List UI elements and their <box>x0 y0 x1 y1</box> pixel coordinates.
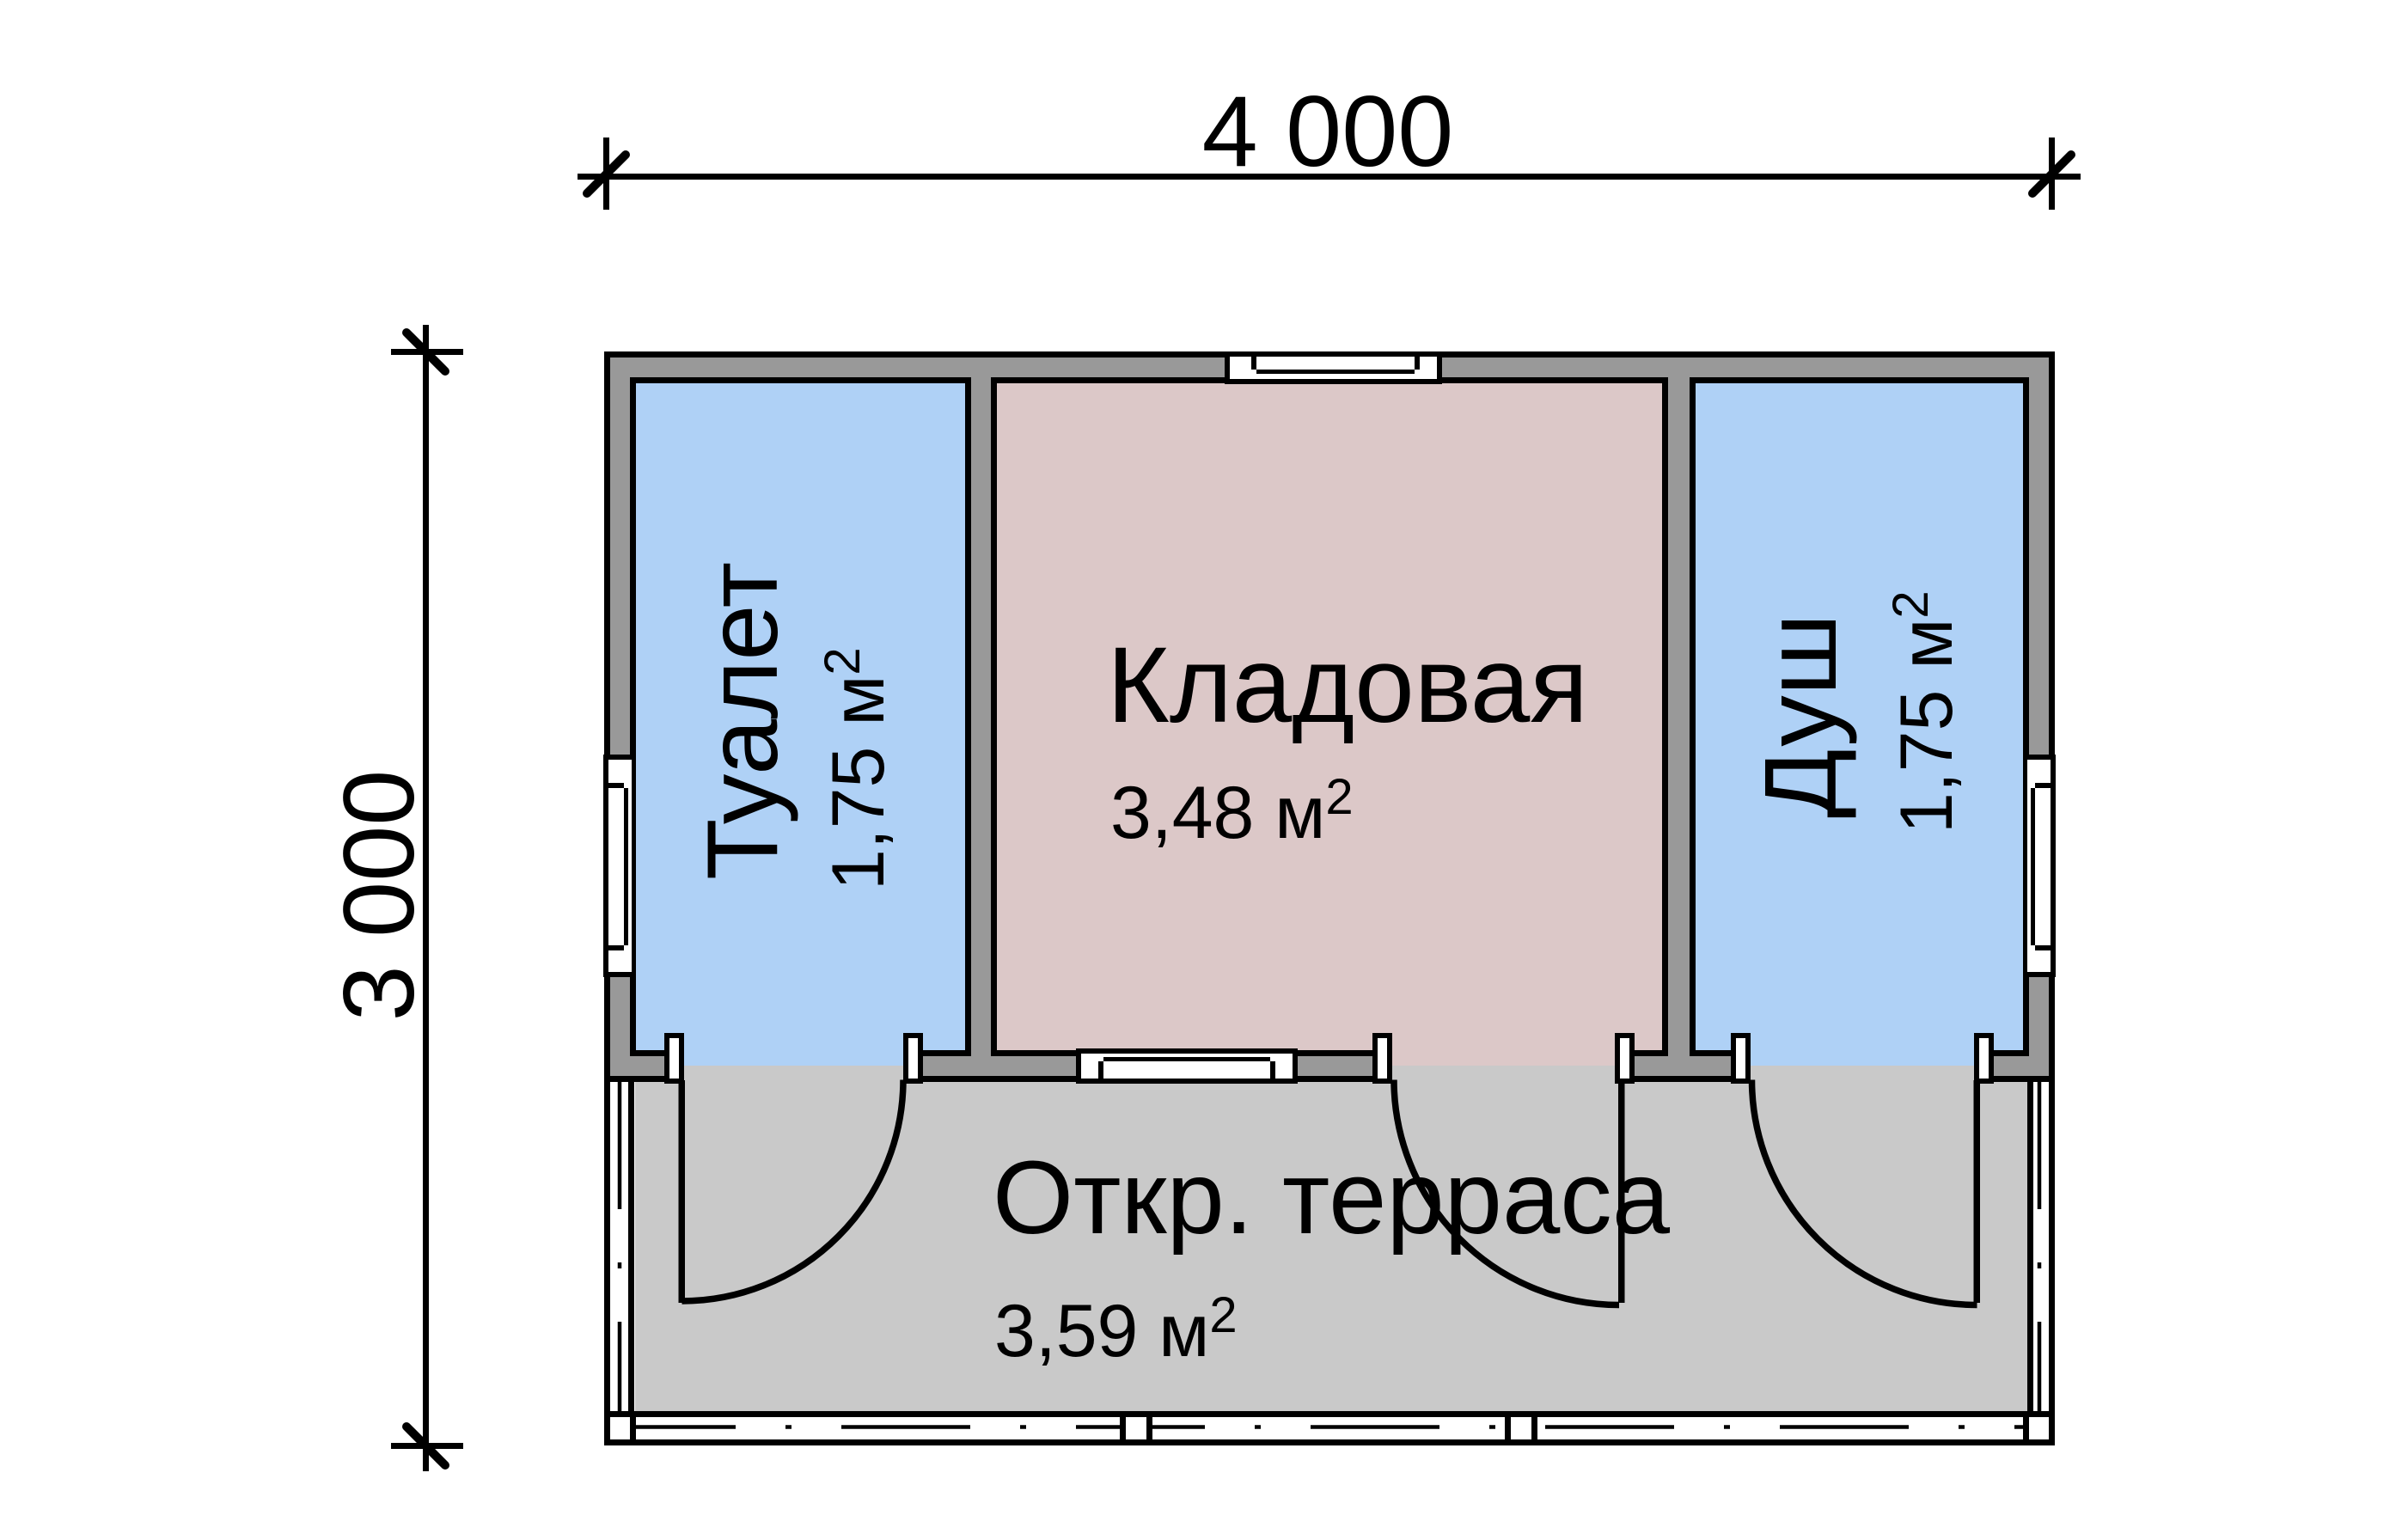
svg-text:Откр. терраса: Откр. терраса <box>993 1139 1671 1256</box>
svg-text:Кладовая: Кладовая <box>1107 626 1588 745</box>
svg-text:3,48 м2: 3,48 м2 <box>1110 769 1354 854</box>
svg-text:1,75 м2: 1,75 м2 <box>1883 590 1968 834</box>
svg-text:3,59 м2: 3,59 м2 <box>994 1287 1238 1372</box>
svg-text:Туалет: Туалет <box>686 562 798 880</box>
svg-text:1,75 м2: 1,75 м2 <box>815 647 900 890</box>
svg-text:Душ: Душ <box>1744 614 1858 818</box>
svg-text:3 000: 3 000 <box>322 770 435 1022</box>
svg-text:4 000: 4 000 <box>1202 75 1454 187</box>
